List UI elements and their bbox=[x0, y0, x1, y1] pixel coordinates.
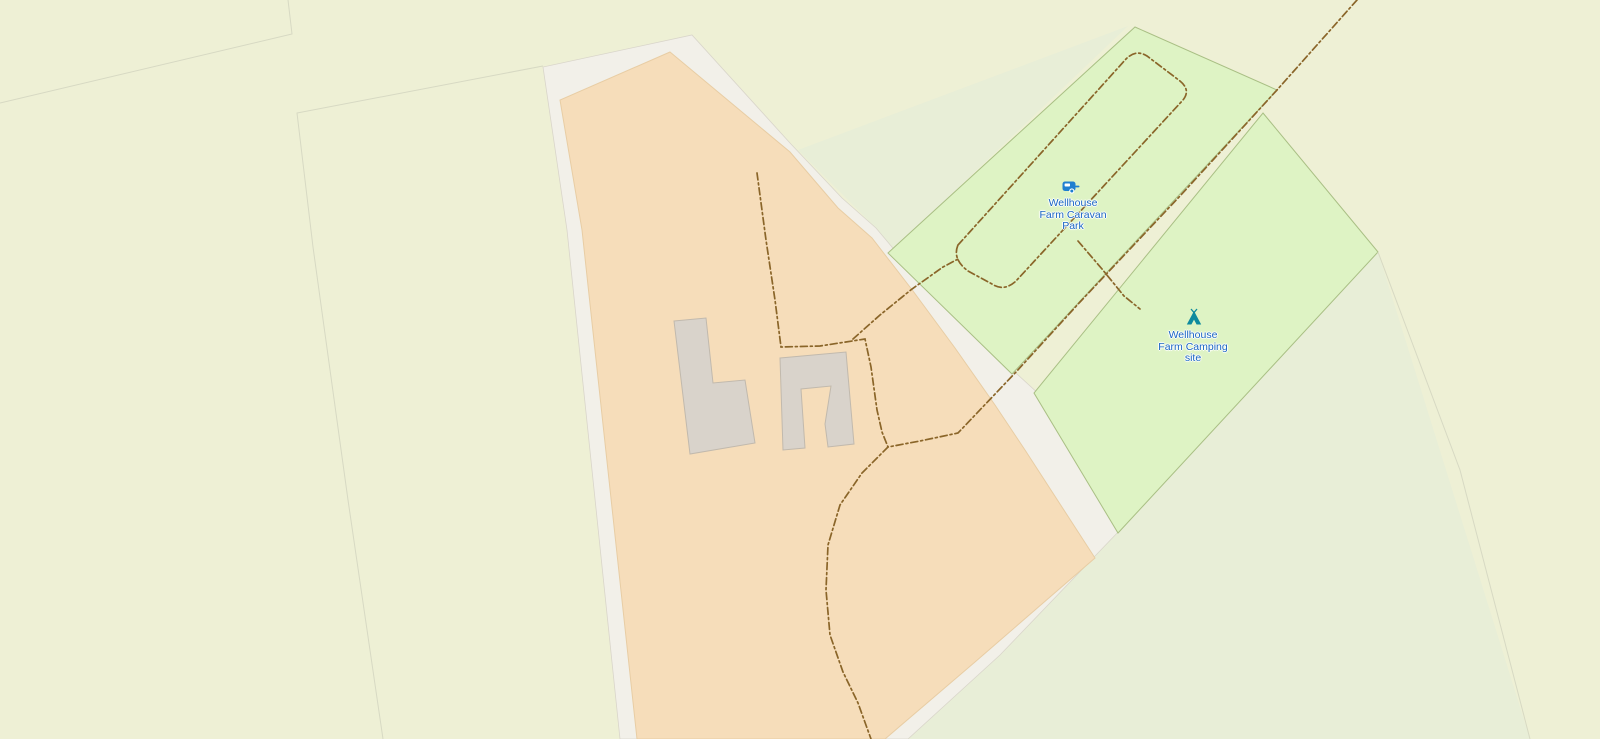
map-viewport[interactable]: Wellhouse Farm Caravan Park Wellhouse Fa… bbox=[0, 0, 1600, 739]
tent-icon bbox=[1186, 308, 1202, 327]
map-canvas[interactable] bbox=[0, 0, 1600, 739]
caravan-icon bbox=[1062, 180, 1080, 194]
camp-site-marker[interactable] bbox=[1186, 308, 1202, 332]
caravan-site-marker[interactable] bbox=[1062, 180, 1080, 199]
